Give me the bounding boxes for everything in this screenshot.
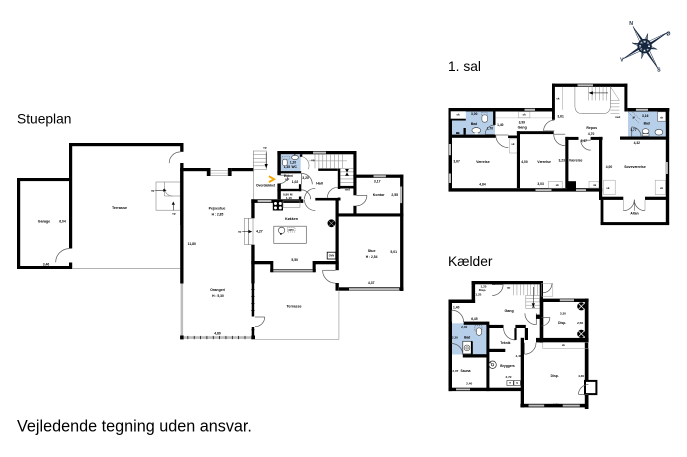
- svg-text:11,80: 11,80: [188, 242, 196, 246]
- svg-text:Stue: Stue: [368, 249, 376, 253]
- svg-text:3,67: 3,67: [453, 160, 460, 164]
- svg-text:V: V: [516, 381, 518, 385]
- svg-text:S: S: [657, 67, 661, 73]
- svg-text:Overdækket: Overdækket: [256, 184, 276, 188]
- svg-text:1,77: 1,77: [630, 128, 637, 132]
- svg-text:sk: sk: [593, 183, 597, 187]
- svg-text:4,32: 4,32: [634, 141, 641, 145]
- svg-text:Bad: Bad: [464, 336, 470, 340]
- svg-text:ned: ned: [615, 115, 620, 119]
- svg-text:Sauna: Sauna: [461, 369, 471, 373]
- svg-text:4,84: 4,84: [479, 182, 486, 186]
- svg-text:4,00: 4,00: [521, 160, 528, 164]
- svg-text:H : 2,54: H : 2,54: [366, 255, 378, 259]
- svg-text:4,00: 4,00: [606, 165, 613, 169]
- svg-text:2,40: 2,40: [461, 325, 467, 329]
- svg-text:3,17: 3,17: [374, 180, 381, 184]
- svg-text:2,07: 2,07: [452, 369, 458, 373]
- svg-text:2,72: 2,72: [505, 375, 511, 379]
- svg-text:3,20: 3,20: [302, 176, 309, 180]
- svg-text:3,30: 3,30: [560, 311, 566, 315]
- svg-text:3,00: 3,00: [471, 112, 478, 116]
- svg-text:Gang: Gang: [505, 309, 514, 313]
- svg-text:Soveværelse: Soveværelse: [624, 165, 646, 169]
- svg-text:Ø: Ø: [666, 31, 670, 37]
- svg-text:2,40: 2,40: [466, 382, 472, 386]
- svg-text:Bryggers: Bryggers: [500, 364, 515, 368]
- svg-text:Gang: Gang: [518, 125, 527, 129]
- svg-text:Altan: Altan: [630, 211, 638, 215]
- svg-text:Stueplan: Stueplan: [17, 111, 71, 126]
- svg-text:Vejledende tegning uden ansvar: Vejledende tegning uden ansvar.: [17, 418, 252, 436]
- svg-text:5,50: 5,50: [291, 258, 298, 262]
- svg-text:Disp.: Disp.: [551, 374, 559, 378]
- svg-text:Garage: Garage: [38, 220, 50, 224]
- svg-text:2,55: 2,55: [391, 193, 398, 197]
- svg-text:1,15: 1,15: [286, 196, 292, 200]
- svg-text:5,01: 5,01: [390, 250, 397, 254]
- svg-text:2,47: 2,47: [581, 139, 588, 143]
- svg-text:4,27: 4,27: [256, 230, 263, 234]
- svg-text:3,23: 3,23: [558, 158, 565, 162]
- svg-text:op: op: [507, 286, 511, 290]
- svg-text:3,46: 3,46: [43, 262, 50, 266]
- svg-text:op: op: [311, 158, 315, 162]
- svg-text:Disp.: Disp.: [558, 321, 566, 325]
- svg-text:4,80: 4,80: [214, 332, 221, 336]
- svg-text:1,40: 1,40: [497, 123, 504, 127]
- svg-text:OVN: OVN: [329, 255, 335, 258]
- svg-text:Kontor: Kontor: [373, 193, 385, 197]
- svg-text:Værelse: Værelse: [476, 160, 490, 164]
- svg-text:sk: sk: [660, 186, 664, 190]
- svg-text:V: V: [620, 57, 624, 63]
- svg-text:sk: sk: [562, 343, 566, 347]
- svg-text:sk: sk: [532, 305, 536, 309]
- svg-text:sk: sk: [456, 113, 460, 117]
- svg-text:sk: sk: [511, 142, 515, 146]
- svg-text:3,03: 3,03: [537, 182, 544, 186]
- svg-text:1,40: 1,40: [453, 305, 460, 309]
- svg-text:Terrasse: Terrasse: [112, 206, 127, 210]
- svg-text:T: T: [509, 381, 511, 385]
- svg-text:Disp.: Disp.: [479, 288, 487, 292]
- svg-text:Kælder: Kælder: [448, 254, 493, 269]
- svg-text:OPV: OPV: [289, 229, 295, 232]
- svg-text:3,61: 3,61: [557, 115, 564, 119]
- svg-text:1,02: 1,02: [292, 180, 299, 184]
- svg-text:1,25: 1,25: [475, 293, 481, 297]
- svg-text:1. sal: 1. sal: [448, 59, 481, 74]
- svg-text:sk: sk: [522, 112, 526, 116]
- svg-text:4,37: 4,37: [368, 281, 375, 285]
- svg-text:6,45: 6,45: [471, 317, 478, 321]
- svg-text:Bad: Bad: [644, 122, 650, 126]
- svg-text:WC: WC: [292, 165, 298, 169]
- svg-text:2,56: 2,56: [577, 321, 583, 325]
- svg-text:op: op: [151, 188, 155, 192]
- svg-text:sk: sk: [606, 186, 610, 190]
- svg-text:Repos: Repos: [586, 126, 597, 130]
- svg-text:4,30: 4,30: [578, 374, 584, 378]
- svg-text:3,16: 3,16: [642, 114, 649, 118]
- svg-text:sk: sk: [556, 96, 560, 100]
- svg-text:2,20: 2,20: [452, 336, 458, 340]
- svg-text:4,70: 4,70: [588, 132, 595, 136]
- svg-text:Hall: Hall: [316, 181, 323, 185]
- svg-text:H : 2,85: H : 2,85: [212, 212, 224, 216]
- svg-text:Bad: Bad: [471, 122, 477, 126]
- svg-text:Køkken: Køkken: [285, 217, 298, 221]
- svg-text:6,04: 6,04: [59, 220, 66, 224]
- svg-text:1,20: 1,20: [290, 160, 296, 164]
- svg-text:3,99: 3,99: [519, 120, 526, 124]
- svg-text:Pejsestue: Pejsestue: [209, 207, 226, 211]
- svg-text:N: N: [629, 21, 633, 27]
- svg-text:Orangeri: Orangeri: [210, 288, 225, 292]
- svg-text:Terrasse: Terrasse: [286, 304, 301, 308]
- svg-text:Teknik: Teknik: [500, 341, 510, 345]
- svg-text:1,35: 1,35: [284, 165, 290, 169]
- svg-text:Værelse: Værelse: [569, 158, 583, 162]
- svg-text:op: op: [172, 212, 176, 216]
- svg-text:sk: sk: [556, 183, 560, 187]
- svg-text:sk: sk: [660, 115, 664, 119]
- svg-text:op: op: [238, 229, 242, 233]
- svg-text:H : 5,30: H : 5,30: [212, 294, 224, 298]
- svg-text:op: op: [263, 145, 267, 149]
- svg-text:Værelse: Værelse: [537, 160, 551, 164]
